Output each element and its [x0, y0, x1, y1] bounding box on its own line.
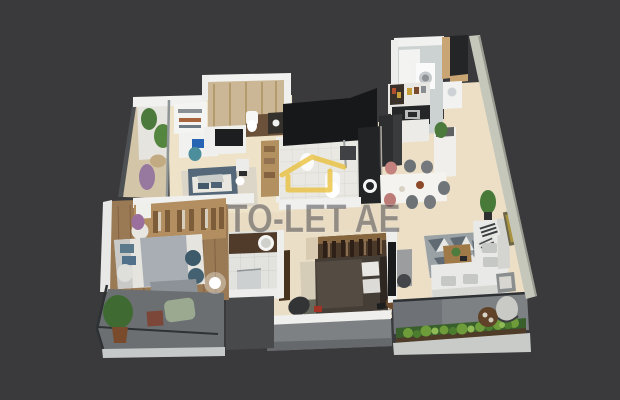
- svg-text:TO-LET AE: TO-LET AE: [227, 196, 400, 241]
